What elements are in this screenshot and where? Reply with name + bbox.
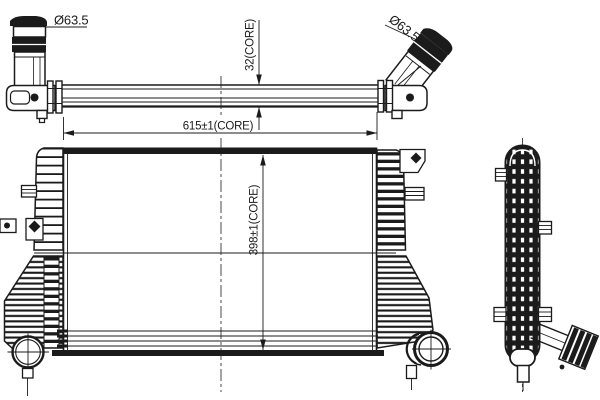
front-view-left-tank — [0, 148, 63, 348]
front-view-right-tank — [377, 150, 433, 349]
drawing-canvas: Ø63.5 Ø63.5 32(CORE) 615±1(CORE) — [0, 0, 600, 400]
core-height-label: 398±1(CORE) — [249, 184, 261, 255]
right-top-bracket — [400, 150, 425, 173]
dim-core-depth: 32(CORE) — [245, 19, 262, 130]
side-view-bottom-cap — [510, 349, 535, 366]
core-depth-label: 32(CORE) — [245, 19, 257, 71]
side-tab-upper-left — [496, 169, 507, 182]
intercooler-technical-drawing: Ø63.5 Ø63.5 32(CORE) 615±1(CORE) — [0, 0, 600, 400]
dim-core-height: 398±1(CORE) — [249, 155, 266, 350]
top-view-left-elbow-pipe — [7, 16, 63, 123]
side-view-body — [506, 146, 540, 362]
dim-left-pipe-diameter: Ø63.5 — [45, 13, 88, 28]
front-view-core — [34, 148, 396, 357]
right-mount-tab — [405, 188, 424, 201]
dim-core-width: 615±1(CORE) — [64, 112, 378, 140]
side-tab-lower-right — [539, 308, 552, 322]
left-mount-tab — [22, 186, 37, 198]
side-tab-mid-right — [539, 222, 552, 235]
side-tab-lower-left — [494, 308, 506, 322]
left-pipe-diameter-label: Ø63.5 — [54, 13, 88, 28]
side-view — [494, 138, 598, 392]
core-width-label: 615±1(CORE) — [183, 121, 254, 133]
side-view-bottom-stub — [518, 366, 530, 383]
